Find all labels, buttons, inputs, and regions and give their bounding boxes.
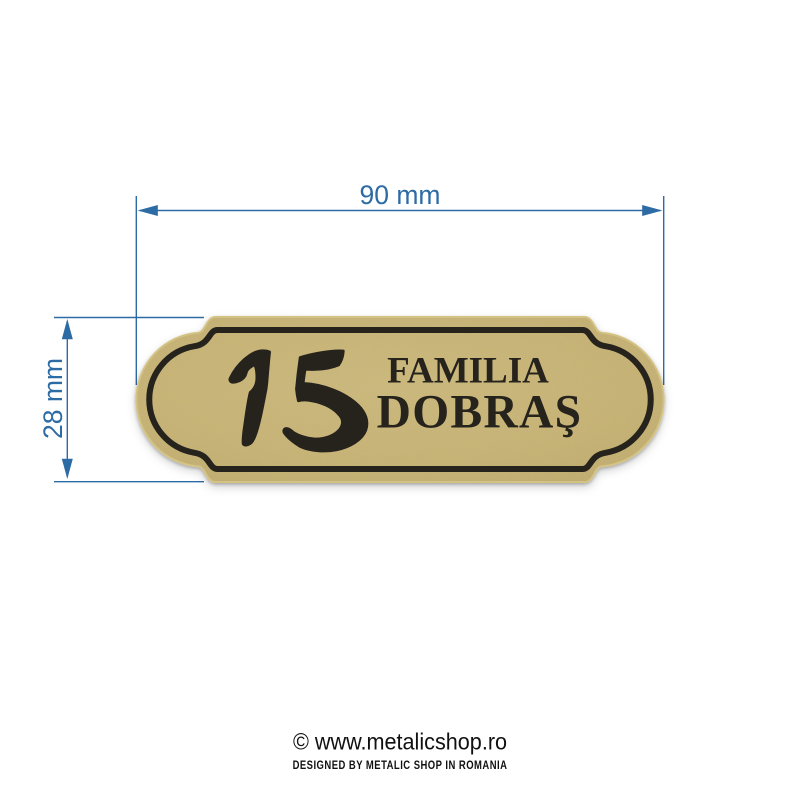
svg-text:DOBRAŞ: DOBRAŞ [377,387,583,439]
svg-text:DESIGNED BY METALIC SHOP IN RO: DESIGNED BY METALIC SHOP IN ROMANIA [293,759,508,772]
svg-text:90 mm: 90 mm [360,180,441,210]
svg-text:FAMILIA: FAMILIA [387,351,549,392]
svg-text:© www.metalicshop.ro: © www.metalicshop.ro [293,729,507,755]
svg-text:28 mm: 28 mm [38,358,68,439]
